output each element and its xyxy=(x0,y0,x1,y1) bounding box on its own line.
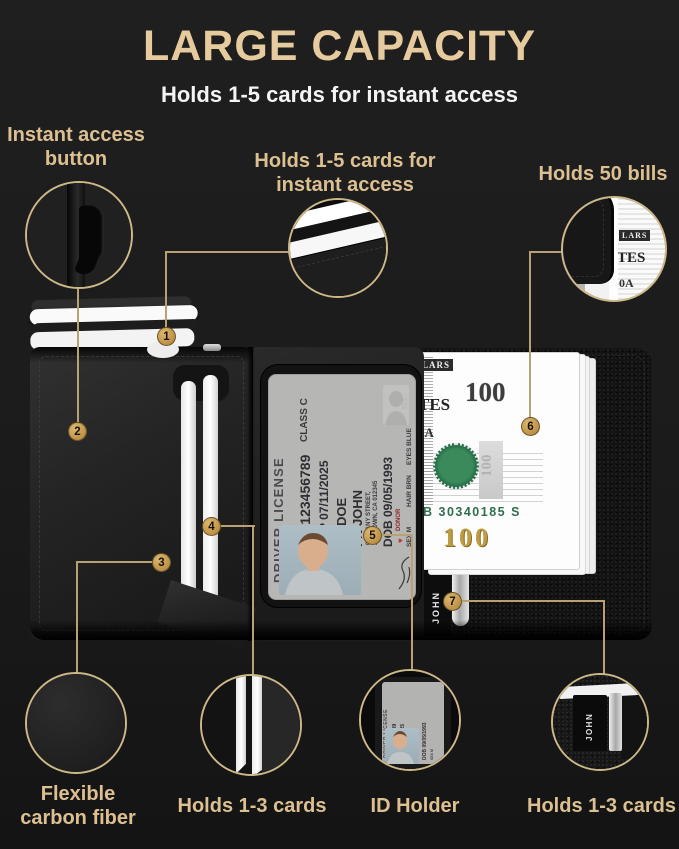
driver-license-mini: DRIVER LICENSE DL 123456789 EXP 07/11/20… xyxy=(382,682,444,764)
card-edge-in-slot xyxy=(236,676,246,776)
license-hair: HAIR BRN xyxy=(406,475,413,507)
label-carbon-fiber: Flexible carbon fiber xyxy=(0,783,156,830)
bill-front: LARS TES 0A 100 100 B 30340185 S 100 xyxy=(420,352,580,570)
connector-line xyxy=(165,252,167,328)
license-eyes: EYES BLUE xyxy=(406,428,413,465)
portrait-graphic xyxy=(279,525,361,595)
label-bill-pocket: Holds 50 bills xyxy=(527,163,679,187)
callout-circle-id-holder: DRIVER LICENSE DL 123456789 EXP 07/11/20… xyxy=(359,669,461,771)
callout-circle-carbon-fiber xyxy=(25,672,127,774)
license-sex: SEX M xyxy=(430,749,434,760)
bill-green-seal xyxy=(433,443,479,489)
leather-edge xyxy=(262,676,302,776)
driver-license: DRIVER LICENSE CLASS C DL 123456789 EXP … xyxy=(268,374,416,600)
connector-line xyxy=(529,252,531,419)
connector-line xyxy=(529,251,563,253)
license-dob: DOB 09/05/1993 xyxy=(422,722,428,760)
button-detail xyxy=(27,183,131,287)
stitching xyxy=(561,196,604,277)
label-side-card-slot: Holds 1-3 cards xyxy=(172,795,332,819)
callout-badge-7: 7 xyxy=(443,592,462,611)
label-line: carbon fiber xyxy=(20,807,136,829)
connector-line xyxy=(165,251,289,253)
metal-catch xyxy=(203,344,221,351)
callout-circle-instant-access xyxy=(25,181,133,289)
product-infographic: LARGE CAPACITY Holds 1-5 cards for insta… xyxy=(0,0,679,849)
cards-detail-group xyxy=(288,198,388,298)
label-line: Instant access xyxy=(7,124,145,146)
bill-text-fragment: 0A xyxy=(619,276,634,291)
bill-watermark: 100 xyxy=(479,455,496,478)
left-leather-panel xyxy=(30,347,253,640)
label-id-holder: ID Holder xyxy=(340,795,490,819)
id-panel: DRIVER LICENSE CLASS C DL 123456789 EXP … xyxy=(248,347,424,641)
side-slot-detail xyxy=(202,676,300,774)
license-class: CLASS C xyxy=(299,398,310,442)
callout-badge-5: 5 xyxy=(363,526,382,545)
bill-text-fragment: LARS xyxy=(619,230,650,241)
connector-line xyxy=(603,600,605,674)
callout-badge-4: 4 xyxy=(202,517,221,536)
leather-pocket-corner xyxy=(561,196,614,284)
label-popup-cards: Holds 1-5 cards for instant access xyxy=(250,150,440,197)
license-photo-mini xyxy=(385,728,419,764)
plate-name-text: JOHN xyxy=(585,713,594,741)
engraved-name-plate-mini: JOHN xyxy=(573,695,607,751)
connector-line xyxy=(77,289,79,424)
card-edge-silver xyxy=(609,693,622,751)
license-photo xyxy=(279,525,361,595)
connector-line xyxy=(460,600,605,602)
cards-detail xyxy=(290,200,386,296)
bill-text-fragment: LARS xyxy=(420,359,453,371)
connector-line xyxy=(219,525,255,527)
label-line: Flexible xyxy=(41,783,115,805)
label-back-card-slot: Holds 1-3 cards xyxy=(524,795,679,819)
portrait-graphic xyxy=(383,385,409,425)
callout-circle-back-slot: JOHN xyxy=(551,673,649,771)
callout-circle-side-slot xyxy=(200,674,302,776)
bill-pocket-detail: LARS TES 0A xyxy=(563,198,665,300)
callout-circle-popup-cards xyxy=(288,198,388,298)
id-holder-detail: DRIVER LICENSE DL 123456789 EXP 07/11/20… xyxy=(361,671,459,769)
label-line: Holds 50 bills xyxy=(539,163,668,185)
connector-line xyxy=(411,534,413,670)
wallet-bottom-shadow xyxy=(30,620,652,640)
connector-line xyxy=(76,561,154,563)
page-subtitle: Holds 1-5 cards for instant access xyxy=(0,82,679,108)
label-line: Holds 1-3 cards xyxy=(178,795,327,817)
callout-badge-3: 3 xyxy=(152,553,171,572)
card-edge-in-slot xyxy=(181,381,196,613)
back-slot-detail: JOHN xyxy=(553,675,647,769)
label-line: Holds 1-5 cards for xyxy=(254,150,435,172)
portrait-graphic xyxy=(385,728,419,764)
bill-denomination-top: 100 xyxy=(465,377,506,408)
label-instant-access-button: Instant access button xyxy=(0,124,152,171)
bill-serial-number: B 30340185 S xyxy=(423,505,521,519)
heart-icon: ♥ xyxy=(396,538,405,543)
callout-badge-1: 1 xyxy=(157,327,176,346)
label-line: instant access xyxy=(276,174,414,196)
label-line: button xyxy=(45,148,107,170)
card-edge-in-slot xyxy=(203,375,218,619)
leather-edge xyxy=(621,687,649,759)
callout-badge-2: 2 xyxy=(68,422,87,441)
bill-stack: LARS TES 0A 100 100 B 30340185 S 100 xyxy=(420,350,600,580)
license-donor: DONOR xyxy=(396,509,402,531)
bill-text-fragment: TES xyxy=(420,395,450,415)
label-line: ID Holder xyxy=(371,795,460,817)
card-edge-in-slot xyxy=(252,676,262,776)
carbon-texture-detail xyxy=(27,674,125,772)
connector-line xyxy=(76,561,78,673)
license-ghost-photo xyxy=(383,385,409,425)
callout-circle-bill-pocket: LARS TES 0A xyxy=(561,196,667,302)
connector-line xyxy=(381,534,413,536)
label-line: Holds 1-3 cards xyxy=(527,795,676,817)
page-title: LARGE CAPACITY xyxy=(0,22,679,71)
callout-badge-6: 6 xyxy=(521,417,540,436)
connector-line xyxy=(252,525,254,675)
bill-text-fragment: TES xyxy=(617,250,645,267)
id-window-frame: DRIVER LICENSE CLASS C DL 123456789 EXP … xyxy=(260,364,422,608)
bill-watermark-band: 100 xyxy=(479,441,503,499)
bill-denomination-gold: 100 xyxy=(443,523,491,553)
